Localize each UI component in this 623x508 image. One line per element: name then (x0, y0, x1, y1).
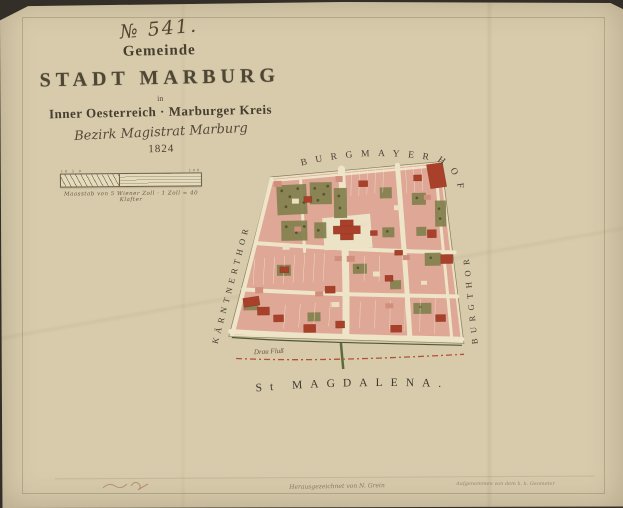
faint-scribble (95, 472, 165, 496)
town-plan-map: BURGMAYERHOF KÄRNTNERTHOR BURGTHOR St MA… (183, 134, 499, 424)
label-drau-fluss: Drau Fluß (253, 347, 285, 357)
scale-bar-hatched-section (61, 174, 120, 187)
label-st-magdalena: St MAGDALENA. (255, 376, 450, 395)
label-burgthor: BURGTHOR (460, 253, 479, 345)
scale-ticks-left: 10 5 0 (61, 168, 83, 173)
scale-bar (60, 172, 202, 187)
scale-caption: Maasstab von 5 Wiener Zoll · 1 Zoll = 40… (60, 190, 202, 203)
page-title: STADT MARBURG (25, 64, 295, 93)
surveyed-by-inscription: Aufgenommen von dem k. k. Geometer (456, 481, 611, 487)
mill-stream (341, 343, 343, 369)
scanned-cadastral-map: { "document": { "sheet_number": "№ 541."… (0, 0, 623, 508)
scale-bar-block: 10 5 0 100 Maasstab von 5 Wiener Zoll · … (60, 167, 202, 203)
